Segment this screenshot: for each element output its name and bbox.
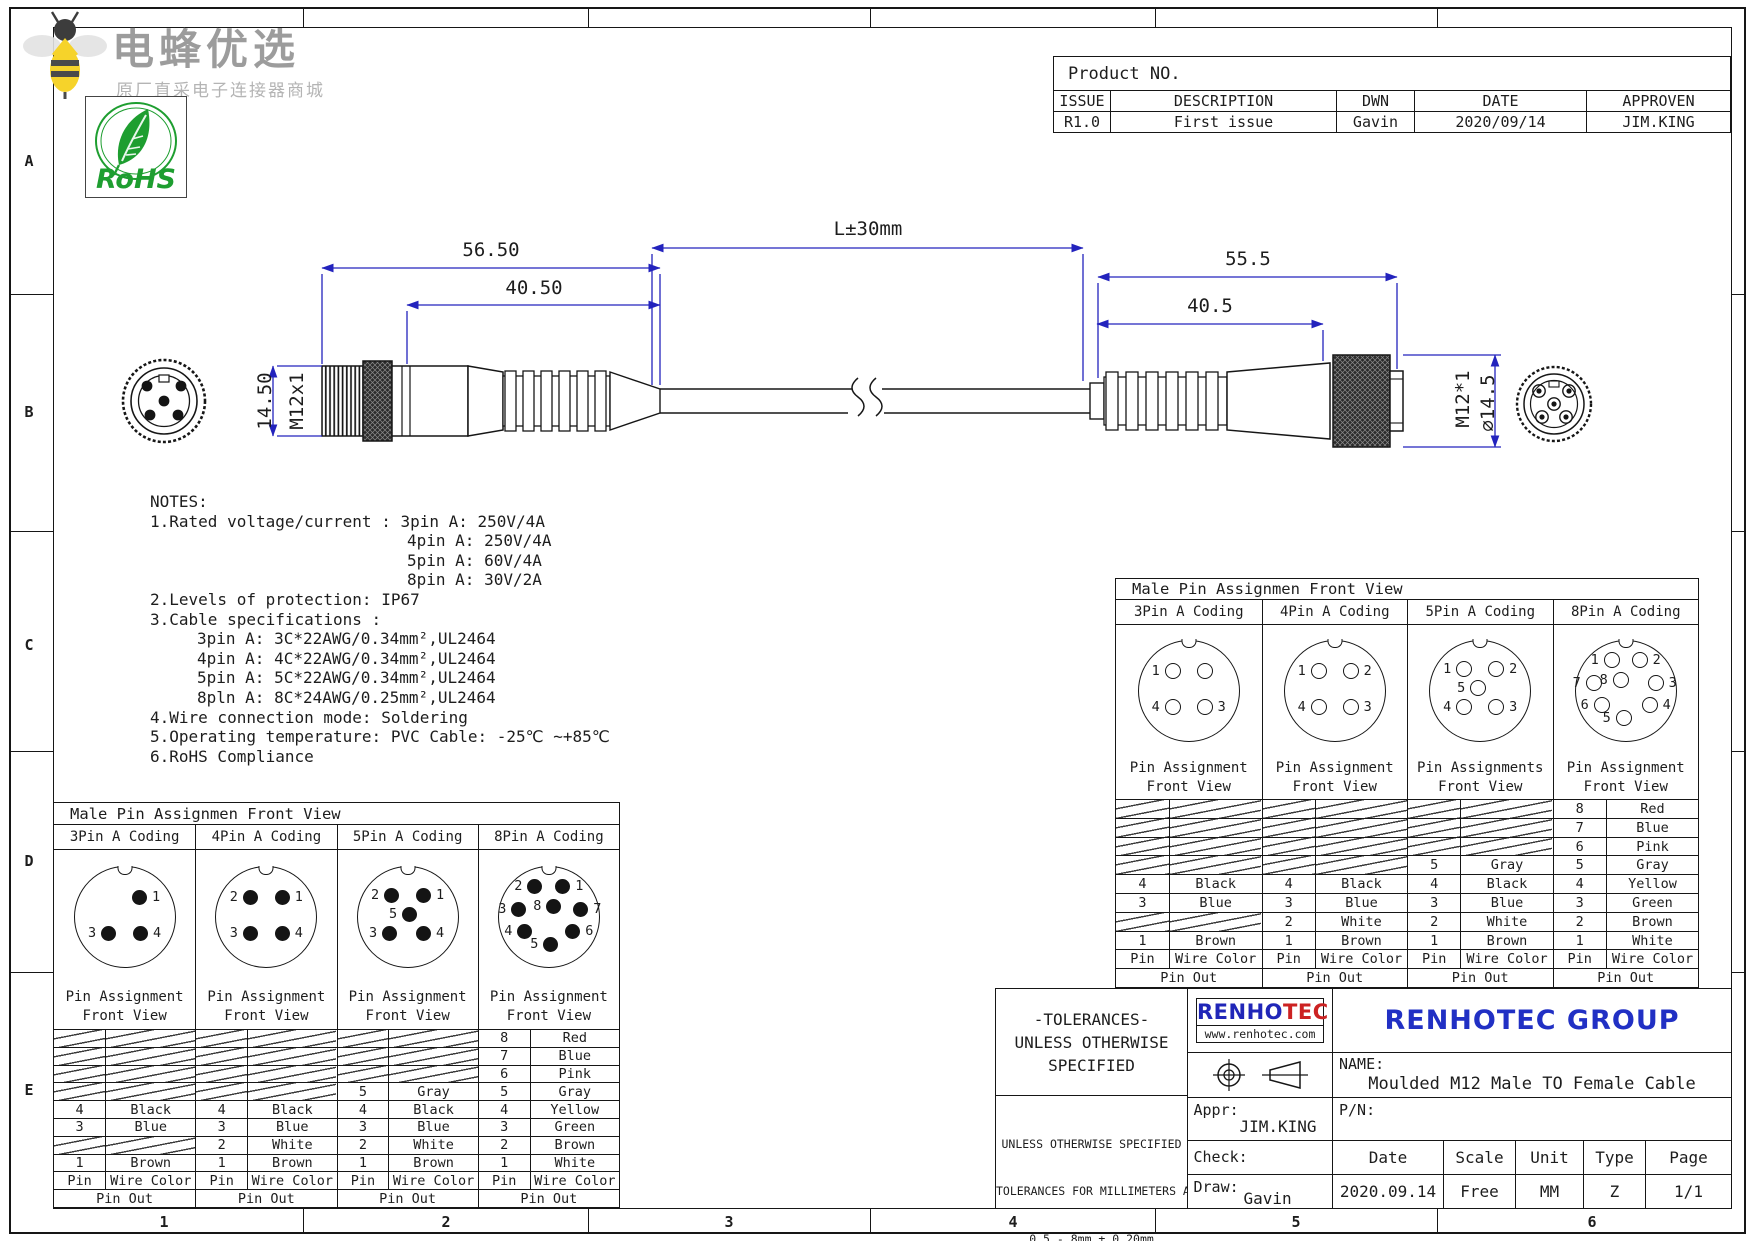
wire-color-cell: White (389, 1137, 477, 1154)
pin-out-cell: Pin Out (479, 1190, 619, 1207)
wire-color-cell (1316, 819, 1407, 837)
wire-color-cell: Blue (1607, 819, 1698, 837)
pin-cell: 2 (1263, 913, 1316, 931)
pin-cell: Pin (338, 1172, 390, 1189)
wire-color-row: 3Blue (54, 1118, 195, 1136)
note-line: 3pin A: 3C*22AWG/0.34mm²,UL2464 (150, 629, 790, 649)
wire-color-row: 2White (338, 1136, 478, 1154)
wire-color-cell: Gray (1607, 856, 1698, 874)
pin-cell (338, 1048, 390, 1065)
pin-cell (54, 1030, 106, 1047)
wire-color-cell (1170, 800, 1262, 818)
type-header: Type (1583, 1141, 1645, 1175)
wire-color-header-row: PinWire Color (1408, 949, 1553, 968)
pin-number-label: 1 (1149, 663, 1163, 679)
pin-number-label: 4 (292, 925, 306, 941)
wire-color-row: 6Pink (1554, 837, 1699, 856)
pin-cell: 3 (1408, 894, 1461, 912)
zone-letter: D (17, 852, 41, 870)
wire-color-cell: Brown (1170, 932, 1262, 950)
scale-header: Scale (1443, 1141, 1515, 1175)
revision-value-cell: 2020/09/14 (1414, 112, 1586, 132)
wire-color-header-row: PinWire Color (54, 1171, 195, 1189)
note-line: 8pin A: 30V/2A (150, 570, 790, 590)
pin-cell: 5 (1408, 856, 1461, 874)
pin-cell: Pin (479, 1172, 531, 1189)
zone-number: 3 (717, 1213, 741, 1231)
dim-right-diameter: ⌀14.5 (1477, 363, 1497, 443)
pin-number-label: 5 (1454, 680, 1468, 696)
pin-cell: Pin (1408, 950, 1461, 968)
right-connector-side-view (1090, 355, 1403, 447)
pin-cell (1408, 819, 1461, 837)
pin-dot (275, 926, 290, 941)
type-value: Z (1583, 1175, 1645, 1208)
wire-color-cell (389, 1030, 477, 1047)
pin-number-label: 2 (1361, 663, 1375, 679)
wire-color-cell (1316, 856, 1407, 874)
wire-color-cell (1461, 838, 1552, 856)
wire-color-row: 1White (1554, 931, 1699, 950)
pin-dot (132, 890, 147, 905)
wire-color-row: 8Red (1554, 799, 1699, 818)
zone-divider (870, 1209, 871, 1234)
dim-right-inner: 40.5 (1150, 295, 1270, 317)
wire-color-cell (106, 1066, 195, 1083)
pin-table-column: 8Pin A Coding12783645Pin AssignmentFront… (1553, 600, 1699, 987)
coding-header: 8Pin A Coding (479, 825, 619, 850)
diagram-caption: Pin AssignmentFront View (1554, 756, 1699, 799)
pin-cell: 3 (1116, 894, 1170, 912)
pin-out-row: Pin Out (1116, 968, 1262, 987)
wire-color-cell: Black (248, 1101, 336, 1118)
pin-number-label: 3 (1666, 675, 1680, 691)
zone-divider (588, 7, 589, 27)
wire-color-row: 7Blue (479, 1047, 619, 1065)
wire-color-cell: Green (531, 1119, 619, 1136)
diagram-caption: Pin AssignmentsFront View (1408, 756, 1553, 799)
diagram-caption: Pin AssignmentFront View (196, 984, 336, 1029)
tb-values-row: 2020.09.14 Free MM Z 1/1 (1332, 1174, 1732, 1209)
zone-letter: A (17, 152, 41, 170)
revision-header-cell: DATE (1414, 91, 1586, 111)
wire-color-cell (106, 1048, 195, 1065)
wire-color-row: 2White (1263, 912, 1408, 931)
pin-number-label: 7 (590, 901, 604, 917)
zone-divider (9, 751, 53, 752)
wire-color-cell: Red (531, 1030, 619, 1047)
wire-color-cell: Pink (531, 1066, 619, 1083)
draw-cell: Draw: Gavin (1187, 1174, 1334, 1209)
rohs-logo: RoHS (85, 96, 187, 198)
notes-title: NOTES: (150, 492, 790, 512)
pin-dot (1343, 699, 1359, 715)
wire-color-cell: Black (106, 1101, 195, 1118)
wire-color-row (1263, 855, 1408, 874)
wire-color-row: 3Green (1554, 893, 1699, 912)
pin-number-label: 2 (1506, 661, 1520, 677)
wire-color-cell (1170, 856, 1262, 874)
wire-color-cell: Blue (531, 1048, 619, 1065)
pin-dot (1632, 652, 1648, 668)
pin-dot (243, 890, 258, 905)
coding-header: 4Pin A Coding (1263, 600, 1408, 625)
pin-cell: Pin (1263, 950, 1316, 968)
connector-diagram: 143 (1116, 625, 1262, 756)
pin-dot (1456, 661, 1472, 677)
wire-color-row: 3Green (479, 1118, 619, 1136)
zone-divider (1437, 1209, 1438, 1234)
wire-color-cell: Blue (248, 1119, 336, 1136)
pin-cell (1263, 819, 1316, 837)
wire-color-row: 2White (1408, 912, 1553, 931)
keying-notch (117, 866, 132, 875)
revision-value-cell: Gavin (1336, 112, 1414, 132)
pin-cell: 7 (1554, 819, 1607, 837)
zone-divider (1437, 7, 1438, 27)
pin-number-label: 3 (227, 925, 241, 941)
pin-number-label: 2 (1650, 652, 1664, 668)
wire-color-header-row: PinWire Color (1263, 949, 1408, 968)
zone-divider (1732, 531, 1746, 532)
diagram-caption: Pin AssignmentFront View (54, 984, 195, 1029)
connector-diagram: 21534 (338, 850, 478, 984)
wire-color-row: 5Gray (479, 1082, 619, 1100)
pin-dot (402, 907, 417, 922)
wire-color-cell: White (248, 1137, 336, 1154)
name-cell: NAME: Moulded M12 Male TO Female Cable (1332, 1052, 1732, 1099)
pin-cell (338, 1066, 390, 1083)
wire-color-row (196, 1047, 336, 1065)
wire-color-row: 4Black (54, 1100, 195, 1118)
coding-header: 3Pin A Coding (54, 825, 195, 850)
pin-cell: 4 (54, 1101, 106, 1118)
pin-cell: 2 (338, 1137, 390, 1154)
wire-color-cell (389, 1066, 477, 1083)
rohs-text: RoHS (86, 164, 186, 195)
pin-dot (1613, 672, 1629, 688)
right-connector-face-view (1517, 367, 1591, 441)
left-connector-face-view (123, 360, 205, 442)
connector-diagram: 12543 (1408, 625, 1553, 756)
pin-number-label: 6 (1578, 697, 1592, 713)
pin-cell (1116, 838, 1170, 856)
wire-color-row: 1White (479, 1154, 619, 1172)
note-line: 4pin A: 4C*22AWG/0.34mm²,UL2464 (150, 649, 790, 669)
pin-cell: 3 (479, 1119, 531, 1136)
tolerance-spec: UNLESS OTHERWISE SPECIFIED TOLERANCES FO… (996, 1105, 1187, 1241)
pin-out-cell: Pin Out (338, 1190, 478, 1207)
revision-table-row: R1.0First issueGavin2020/09/14JIM.KING (1054, 111, 1730, 132)
pin-cell: 8 (1554, 800, 1607, 818)
wire-color-cell: Black (1316, 875, 1407, 893)
diagram-caption: Pin AssignmentFront View (479, 984, 619, 1029)
pin-dot (1488, 699, 1504, 715)
pin-number-label: 1 (149, 889, 163, 905)
pin-number-label: 3 (85, 925, 99, 941)
wire-color-cell: Wire Color (106, 1172, 195, 1189)
wire-color-row: 2Brown (1554, 912, 1699, 931)
wire-color-cell: Blue (389, 1119, 477, 1136)
pin-table-column: 3Pin A Coding134Pin AssignmentFront View… (54, 825, 195, 1207)
pin-cell: 3 (1263, 894, 1316, 912)
zone-divider (303, 7, 304, 27)
revision-value-cell: JIM.KING (1586, 112, 1730, 132)
pin-cell: 1 (54, 1155, 106, 1172)
left-connector-side-view (322, 361, 660, 441)
connector-diagram: 21387465 (479, 850, 619, 984)
wire-color-cell: Gray (1461, 856, 1552, 874)
wire-color-row (338, 1047, 478, 1065)
wire-color-cell: Wire Color (1461, 950, 1552, 968)
wire-color-row: 4Black (338, 1100, 478, 1118)
pin-number-label: 5 (386, 906, 400, 922)
coding-header: 3Pin A Coding (1116, 600, 1262, 625)
wire-color-row: 3Blue (1116, 893, 1262, 912)
wire-color-row (1263, 818, 1408, 837)
pin-cell (196, 1030, 248, 1047)
wire-color-header-row: PinWire Color (1116, 949, 1262, 968)
pin-cell (1263, 856, 1316, 874)
wire-color-row: 1Brown (54, 1154, 195, 1172)
revision-header-cell: DWN (1336, 91, 1414, 111)
zone-divider (1732, 751, 1746, 752)
pin-cell: 3 (196, 1119, 248, 1136)
diagram-caption: Pin AssignmentFront View (338, 984, 478, 1029)
note-line: 3.Cable specifications : (150, 610, 790, 630)
wire-color-cell: Wire Color (1316, 950, 1407, 968)
note-line: 4pin A: 250V/4A (150, 531, 790, 551)
zone-divider (9, 294, 53, 295)
pin-out-row: Pin Out (479, 1189, 619, 1207)
revision-header-cell: DESCRIPTION (1110, 91, 1336, 111)
pin-dot (1604, 652, 1620, 668)
wire-color-cell (1316, 838, 1407, 856)
wire-color-cell: Brown (1316, 932, 1407, 950)
dim-left-height: 14.50 (254, 361, 274, 441)
wire-color-cell: White (1607, 932, 1698, 950)
wire-color-cell (248, 1030, 336, 1047)
page-header: Page (1645, 1141, 1731, 1175)
pin-table-column: 8Pin A Coding21387465Pin AssignmentFront… (478, 825, 619, 1207)
pin-cell (1408, 800, 1461, 818)
keying-notch (541, 866, 556, 875)
wire-color-row (54, 1047, 195, 1065)
wire-color-header-row: PinWire Color (1554, 949, 1699, 968)
wire-color-cell: Blue (1170, 894, 1262, 912)
pin-cell: 4 (196, 1101, 248, 1118)
dim-right-thread: M12*1 (1452, 359, 1472, 439)
wire-color-row: 1Brown (196, 1154, 336, 1172)
wire-color-cell: Green (1607, 894, 1698, 912)
dim-left-total: 56.50 (431, 239, 551, 261)
zone-divider (870, 7, 871, 27)
coding-header: 5Pin A Coding (338, 825, 478, 850)
appr-value: JIM.KING (1240, 1117, 1317, 1136)
pin-out-cell: Pin Out (1263, 969, 1407, 987)
pin-cell (196, 1083, 248, 1100)
pin-table-column: 5Pin A Coding12543Pin AssignmentsFront V… (1407, 600, 1553, 987)
wire-color-cell: Gray (531, 1083, 619, 1100)
pin-out-row: Pin Out (196, 1189, 336, 1207)
pin-cell (1408, 838, 1461, 856)
zone-divider (1155, 7, 1156, 27)
wire-color-row: 3Blue (1263, 893, 1408, 912)
pin-number-label: 4 (1440, 699, 1454, 715)
revision-header-cell: ISSUE (1054, 91, 1110, 111)
wire-color-cell (1170, 913, 1262, 931)
wire-color-cell: White (1316, 913, 1407, 931)
pin-cell: 5 (338, 1083, 390, 1100)
wire-color-row: 1Brown (1116, 931, 1262, 950)
connector-diagram: 12783645 (1554, 625, 1699, 756)
wire-color-cell (389, 1048, 477, 1065)
pin-number-label: 6 (582, 923, 596, 939)
pin-number-label: 3 (495, 901, 509, 917)
pn-label: P/N: (1339, 1101, 1375, 1119)
wire-color-cell: Blue (1461, 894, 1552, 912)
wire-color-row (338, 1065, 478, 1083)
wire-color-cell: White (1461, 913, 1552, 931)
pin-cell (54, 1137, 106, 1154)
pin-cell: 3 (1554, 894, 1607, 912)
wire-color-row: 4Yellow (479, 1100, 619, 1118)
pin-dot (133, 926, 148, 941)
pin-cell: 4 (1554, 875, 1607, 893)
zone-letter: B (17, 403, 41, 421)
wire-color-cell: Black (1170, 875, 1262, 893)
brand-name: 电蜂优选 (112, 16, 300, 77)
zone-divider (1732, 294, 1746, 295)
wire-color-cell: Blue (1316, 894, 1407, 912)
pin-number-label: 1 (1295, 663, 1309, 679)
pin-cell: 3 (338, 1119, 390, 1136)
wire-color-cell (248, 1048, 336, 1065)
company-cell: RENHOTEC GROUP (1332, 988, 1732, 1054)
note-line: 8pln A: 8C*24AWG/0.25mm²,UL2464 (150, 688, 790, 708)
wire-color-row: 5Gray (1408, 855, 1553, 874)
pin-dot (416, 926, 431, 941)
pin-number-label: 1 (1588, 652, 1602, 668)
connector-circle: 12543 (1429, 640, 1531, 742)
wire-color-row (54, 1082, 195, 1100)
note-line: 4.Wire connection mode: Soldering (150, 708, 790, 728)
pin-number-label: 5 (1600, 710, 1614, 726)
pin-number-label: 8 (1597, 672, 1611, 688)
wire-color-row (1116, 855, 1262, 874)
draw-label: Draw: (1194, 1178, 1239, 1196)
keying-notch (1327, 639, 1342, 648)
pin-cell: 1 (479, 1155, 531, 1172)
wire-color-cell: Wire Color (1607, 950, 1698, 968)
pin-number-label: 1 (433, 887, 447, 903)
connector-circle: 134 (74, 866, 176, 968)
wire-color-row: 8Red (479, 1029, 619, 1047)
pin-table-title: Male Pin Assignmen Front View (1116, 579, 1698, 600)
date-value: 2020.09.14 (1333, 1175, 1443, 1208)
revision-header-cell: APPROVEN (1586, 91, 1730, 111)
pin-cell (196, 1066, 248, 1083)
pin-number-label: 4 (501, 923, 515, 939)
wire-color-cell (106, 1137, 195, 1154)
wire-color-cell: Pink (1607, 838, 1698, 856)
wire-color-cell: Yellow (1607, 875, 1698, 893)
connector-diagram: 2134 (196, 850, 336, 984)
wire-color-row: 4Black (196, 1100, 336, 1118)
tolerances-line3: SPECIFIED (1048, 1056, 1135, 1075)
wire-color-row: 3Blue (338, 1118, 478, 1136)
coding-header: 4Pin A Coding (196, 825, 336, 850)
pin-number-label: 4 (433, 925, 447, 941)
appr-label: Appr: (1194, 1101, 1239, 1119)
wire-color-cell: Blue (106, 1119, 195, 1136)
pin-cell (54, 1048, 106, 1065)
pin-cell (1116, 913, 1170, 931)
drawing-sheet: ABCDE123456 电蜂优选 原厂直采电子连接器商城 RoHS Pr (0, 0, 1754, 1241)
pin-cell: 1 (1116, 932, 1170, 950)
dim-left-inner: 40.50 (474, 277, 594, 299)
zone-number: 1 (152, 1213, 176, 1231)
scale-value: Free (1443, 1175, 1515, 1208)
pin-dot (382, 926, 397, 941)
note-line: 5pin A: 5C*22AWG/0.34mm²,UL2464 (150, 668, 790, 688)
wire-color-row (1408, 799, 1553, 818)
connector-circle: 2134 (215, 866, 317, 968)
note-line: 5.Operating temperature: PVC Cable: -25℃… (150, 727, 790, 747)
pin-number-label: 1 (572, 878, 586, 894)
projection-angle-symbol (1262, 1060, 1308, 1090)
pin-cell (1263, 800, 1316, 818)
pin-cell: 4 (479, 1101, 531, 1118)
pin-dot (546, 899, 561, 914)
note-line: 6.RoHS Compliance (150, 747, 790, 767)
keying-notch (1181, 639, 1196, 648)
coding-header: 5Pin A Coding (1408, 600, 1553, 625)
wire-color-row (54, 1065, 195, 1083)
wire-color-row: 7Blue (1554, 818, 1699, 837)
wire-color-row: 6Pink (479, 1065, 619, 1083)
zone-divider (9, 531, 53, 532)
revision-value-cell: First issue (1110, 112, 1336, 132)
wire-color-row (1116, 837, 1262, 856)
pin-table-column: 4Pin A Coding2134Pin AssignmentFront Vie… (195, 825, 336, 1207)
wire-color-row: 4Black (1408, 874, 1553, 893)
wire-color-row (1116, 799, 1262, 818)
pin-dot (1197, 699, 1213, 715)
pin-dot (527, 879, 542, 894)
zone-divider (303, 1209, 304, 1234)
wire-color-row (196, 1029, 336, 1047)
pin-dot (101, 926, 116, 941)
pin-dot (565, 924, 580, 939)
pin-cell (54, 1066, 106, 1083)
pin-dot (1311, 699, 1327, 715)
pin-number-label: 3 (366, 925, 380, 941)
pin-cell: Pin (196, 1172, 248, 1189)
wire-color-row: 4Black (1116, 874, 1262, 893)
pin-number-label: 7 (1570, 675, 1584, 691)
connector-circle: 143 (1138, 640, 1240, 742)
pin-cell: 4 (1408, 875, 1461, 893)
note-line: 5pin A: 60V/4A (150, 551, 790, 571)
name-label: NAME: (1339, 1055, 1384, 1073)
pin-cell: 2 (479, 1137, 531, 1154)
revision-table-header: ISSUEDESCRIPTIONDWNDATEAPPROVEN (1054, 90, 1730, 111)
renhotec-url: www.renhotec.com (1197, 1025, 1323, 1042)
pin-number-label: 1 (1440, 661, 1454, 677)
pin-cell: 2 (1408, 913, 1461, 931)
wire-color-row: 5Gray (1554, 855, 1699, 874)
